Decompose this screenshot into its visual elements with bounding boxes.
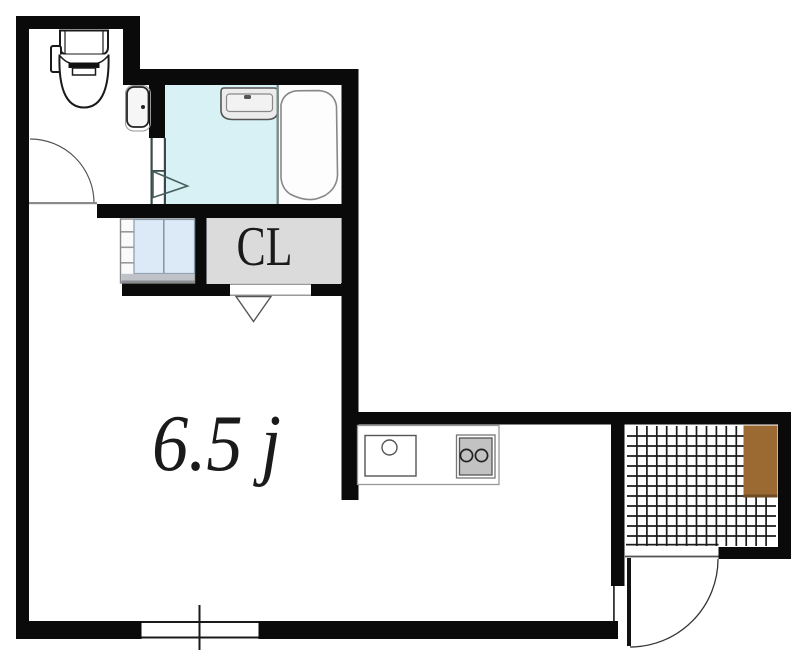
svg-text:CL: CL — [237, 216, 293, 278]
svg-text:6.5 j: 6.5 j — [152, 400, 281, 488]
